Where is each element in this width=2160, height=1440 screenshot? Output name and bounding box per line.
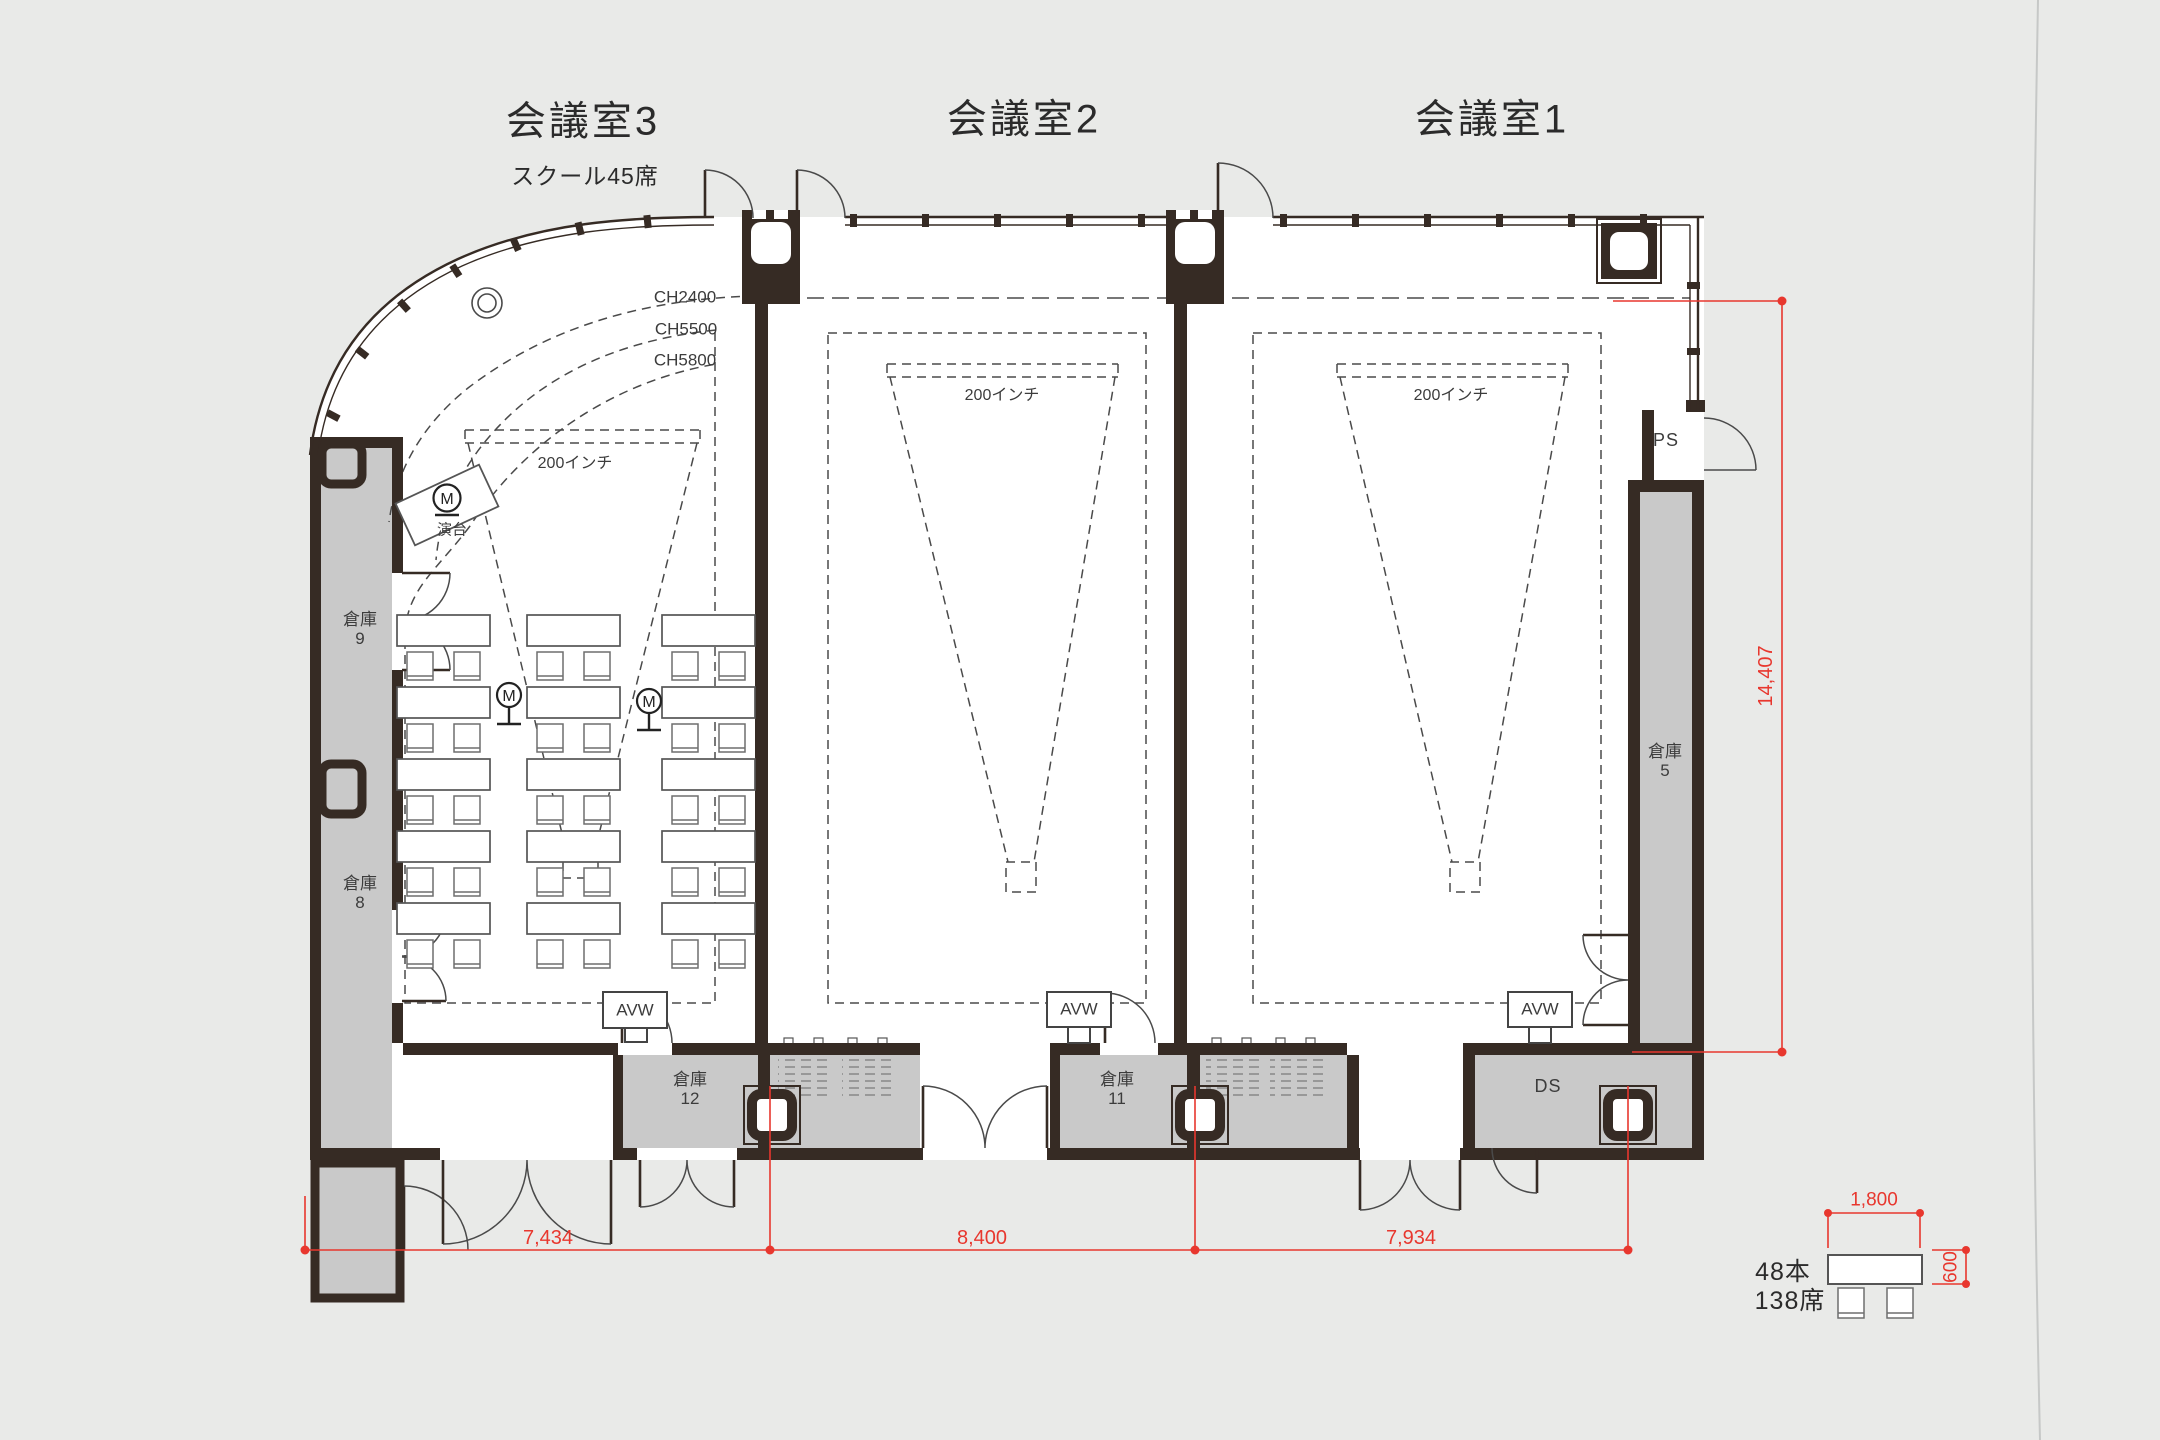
lectern-label: 演台: [437, 523, 467, 540]
ds-label: DS: [1534, 1076, 1561, 1096]
column-left-top: [322, 444, 362, 484]
storage-block-sw: [315, 1163, 400, 1298]
wall-room3-room2: [755, 217, 768, 1043]
storage12-label: 倉庫12: [673, 1070, 707, 1108]
ch5800-label: CH5800: [654, 350, 716, 369]
floor-plan-drawing: M M M: [0, 0, 2160, 1440]
room1-title: 会議室1: [1415, 98, 1569, 143]
storage8-label: 倉庫8: [343, 874, 377, 912]
room2-avw-label: AVW: [1060, 999, 1097, 1018]
room1-screen-label: 200インチ: [1414, 387, 1489, 405]
column-top-corner: [1597, 219, 1661, 283]
storage9-label: 倉庫9: [343, 610, 377, 648]
dim-7934: 7,934: [1386, 1227, 1436, 1249]
dim-1800: 1,800: [1850, 1189, 1898, 1210]
wall-room2-room1: [1174, 217, 1187, 1043]
room2-title: 会議室2: [947, 98, 1101, 143]
ch5500-label: CH5500: [655, 319, 717, 338]
svg-text:M: M: [502, 688, 515, 705]
dim-7434: 7,434: [523, 1227, 573, 1249]
column-bottom-b: [1172, 1086, 1228, 1144]
room3-screen-label: 200インチ: [538, 455, 613, 473]
room1-avw-label: AVW: [1521, 999, 1558, 1018]
storage11-label: 倉庫11: [1100, 1070, 1134, 1108]
storage5-label: 倉庫5: [1648, 742, 1682, 780]
svg-text:M: M: [440, 491, 453, 508]
ch2400-label: CH2400: [654, 287, 716, 306]
column-top-a: [742, 210, 800, 304]
page-edge-line: [2031, 0, 2040, 1440]
column-top-b: [1166, 210, 1224, 304]
legend-table-symbol: [1828, 1255, 1922, 1318]
dim-600: 600: [1940, 1251, 1961, 1283]
legend-seat-count: 138席: [1755, 1287, 1826, 1315]
room3-subtitle: スクール45席: [511, 164, 659, 190]
room3-title: 会議室3: [506, 100, 660, 145]
ps-label: PS: [1653, 430, 1679, 450]
floor-plan-page: M M M 会議室3 スクール45席 会議室2: [0, 0, 2160, 1440]
column-left-mid: [322, 764, 362, 814]
dim-14407: 14,407: [1755, 645, 1777, 706]
room3-avw-label: AVW: [616, 1000, 653, 1019]
room2-screen-label: 200インチ: [965, 387, 1040, 405]
dim-8400: 8,400: [957, 1227, 1007, 1249]
legend-table-count: 48本: [1755, 1258, 1811, 1286]
svg-text:M: M: [642, 694, 655, 711]
ps-door: [1704, 418, 1756, 470]
column-bottom-a: [744, 1086, 800, 1144]
